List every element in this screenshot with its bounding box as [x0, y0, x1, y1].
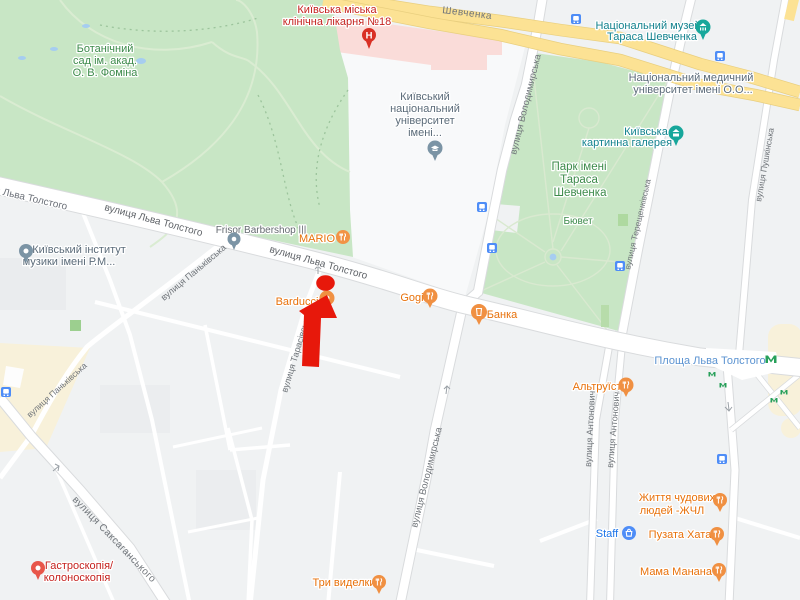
svg-text:О. В. Фоміна: О. В. Фоміна: [73, 67, 139, 79]
svg-text:Київська міська: Київська міська: [297, 4, 377, 16]
svg-text:Тараса: Тараса: [560, 174, 598, 186]
svg-text:сад ім. акад.: сад ім. акад.: [73, 55, 137, 67]
svg-text:Тараса Шевченка: Тараса Шевченка: [607, 31, 698, 43]
svg-text:колоноскопія: колоноскопія: [44, 572, 111, 584]
svg-text:Шевченка: Шевченка: [554, 187, 608, 199]
svg-text:Київський інститут: Київський інститут: [32, 244, 126, 256]
svg-text:картинна галерея: картинна галерея: [582, 137, 672, 149]
svg-text:Парк імені: Парк імені: [551, 161, 606, 173]
svg-text:Бювет: Бювет: [563, 216, 592, 227]
svg-text:Gogi: Gogi: [400, 292, 423, 304]
svg-text:Мама Манана: Мама Манана: [640, 566, 713, 578]
svg-text:Життя чудових: Життя чудових: [639, 492, 716, 504]
svg-text:університет: університет: [395, 115, 454, 127]
svg-text:національний: національний: [390, 103, 460, 115]
svg-text:Три виделки: Три виделки: [313, 577, 376, 589]
svg-text:Staff: Staff: [596, 528, 619, 540]
svg-text:Альтруїст: Альтруїст: [573, 381, 622, 393]
svg-text:Ботанічний: Ботанічний: [77, 43, 134, 55]
svg-text:імені...: імені...: [408, 127, 442, 139]
svg-text:H: H: [366, 31, 373, 42]
svg-text:університет імені О.О...: університет імені О.О...: [633, 84, 752, 96]
svg-text:клінічна лікарня №18: клінічна лікарня №18: [283, 16, 392, 28]
svg-text:Національний медичний: Національний медичний: [629, 72, 754, 84]
svg-text:Банка: Банка: [487, 309, 518, 321]
svg-text:MARIO: MARIO: [299, 233, 336, 245]
svg-text:музики імені Р.М...: музики імені Р.М...: [23, 256, 116, 268]
svg-text:Площа Льва Толстого: Площа Льва Толстого: [654, 355, 765, 367]
svg-text:Київський: Київський: [400, 91, 450, 103]
svg-text:Пузата Хата: Пузата Хата: [649, 529, 713, 541]
svg-text:Frisor Barbershop |||: Frisor Barbershop |||: [216, 225, 307, 236]
svg-text:людей -ЖЧЛ: людей -ЖЧЛ: [640, 505, 705, 517]
svg-text:Гастроскопія/: Гастроскопія/: [45, 560, 114, 572]
